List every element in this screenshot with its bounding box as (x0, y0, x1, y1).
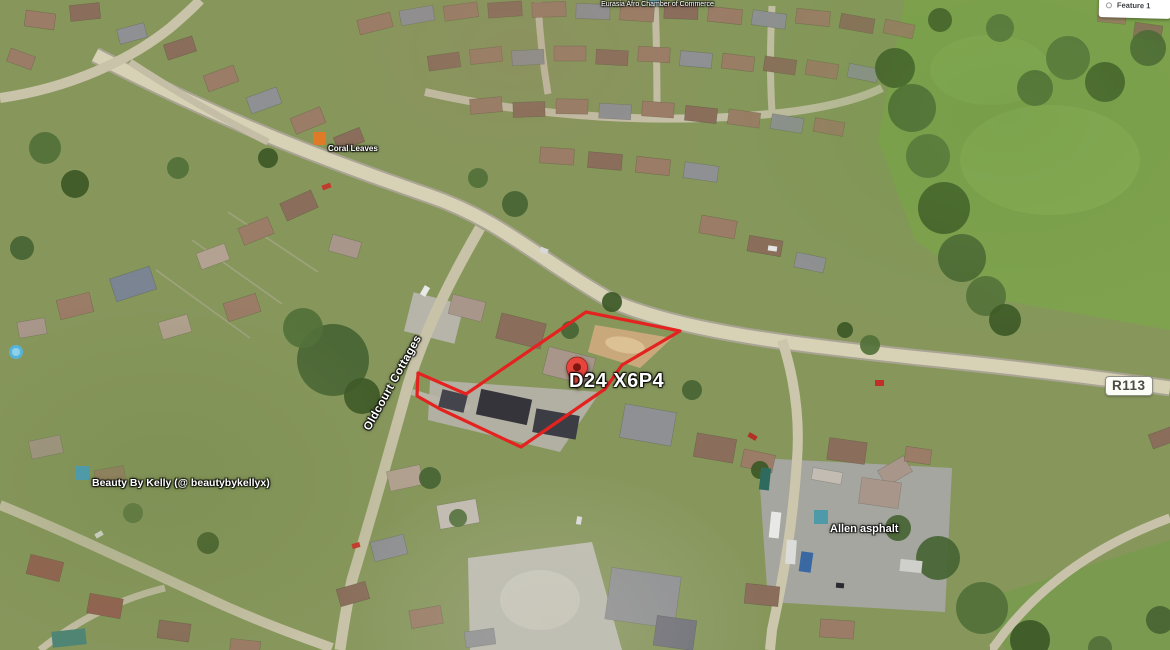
legend-card[interactable]: Feature 1 (1099, 0, 1170, 19)
poi-label-allen-asphalt[interactable]: Allen asphalt (830, 523, 898, 535)
aerial-imagery (0, 0, 1170, 650)
road-badge-r113: R113 (1105, 376, 1153, 396)
feature-marker-icon (1106, 2, 1112, 8)
shopping-poi-icon[interactable] (313, 132, 326, 145)
place-poi-icon[interactable] (814, 510, 828, 524)
poi-label-coral-leaves[interactable]: Coral Leaves (328, 144, 378, 153)
map-canvas[interactable]: D24 X6P4 Oldcourt Cottages Coral Leaves … (0, 0, 1170, 650)
place-poi-icon[interactable] (76, 466, 90, 480)
poi-label-beauty-by-kelly[interactable]: Beauty By Kelly (@ beautybykellyx) (92, 477, 270, 489)
eircode-label: D24 X6P4 (569, 370, 664, 393)
legend-item-label: Feature 1 (1117, 1, 1151, 11)
legend-item-feature-1[interactable]: Feature 1 (1099, 0, 1170, 11)
poi-label-chamber[interactable]: Eurasia Afro Chamber of Commerce (595, 1, 720, 8)
